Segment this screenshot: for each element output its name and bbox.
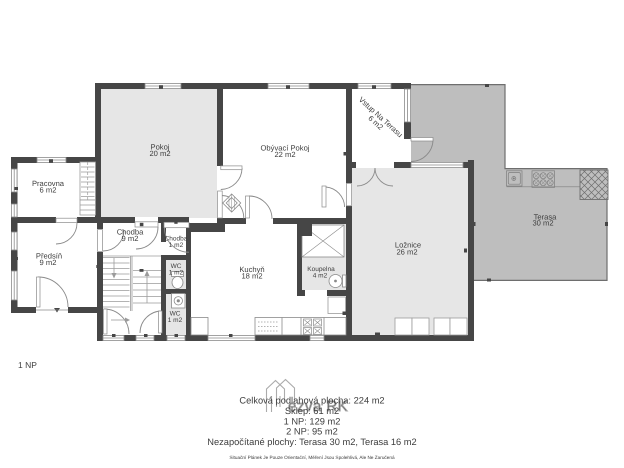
- svg-text:20 m2: 20 m2: [149, 149, 170, 158]
- svg-text:Nezapočítané plochy: Terasa 30: Nezapočítané plochy: Terasa 30 m2, Teras…: [207, 437, 416, 447]
- svg-text:1 m2: 1 m2: [169, 242, 184, 249]
- svg-text:6 m2: 6 m2: [40, 186, 57, 195]
- svg-text:9 m2: 9 m2: [122, 234, 139, 243]
- svg-text:26 m2: 26 m2: [396, 248, 417, 257]
- svg-text:18 m2: 18 m2: [241, 272, 262, 281]
- svg-text:Situační Plánek Je Pouze Orien: Situační Plánek Je Pouze Orientační, Měř…: [229, 455, 395, 460]
- svg-text:1 NP: 129 m2: 1 NP: 129 m2: [284, 417, 341, 427]
- svg-text:Celková podlahová plocha: 224: Celková podlahová plocha: 224 m2: [239, 396, 384, 406]
- svg-text:Sklep: 61 m2: Sklep: 61 m2: [285, 406, 339, 416]
- svg-text:1 m2: 1 m2: [168, 317, 183, 324]
- svg-text:1 NP: 1 NP: [18, 360, 37, 370]
- svg-text:4 m2: 4 m2: [313, 272, 328, 279]
- svg-text:1 m2: 1 m2: [169, 269, 184, 276]
- svg-text:22 m2: 22 m2: [274, 150, 295, 159]
- svg-text:Vstup Na Terasu: Vstup Na Terasu: [357, 95, 405, 139]
- svg-text:9 m2: 9 m2: [40, 258, 57, 267]
- svg-text:30 m2: 30 m2: [532, 219, 553, 228]
- svg-text:2 NP: 95 m2: 2 NP: 95 m2: [286, 427, 338, 437]
